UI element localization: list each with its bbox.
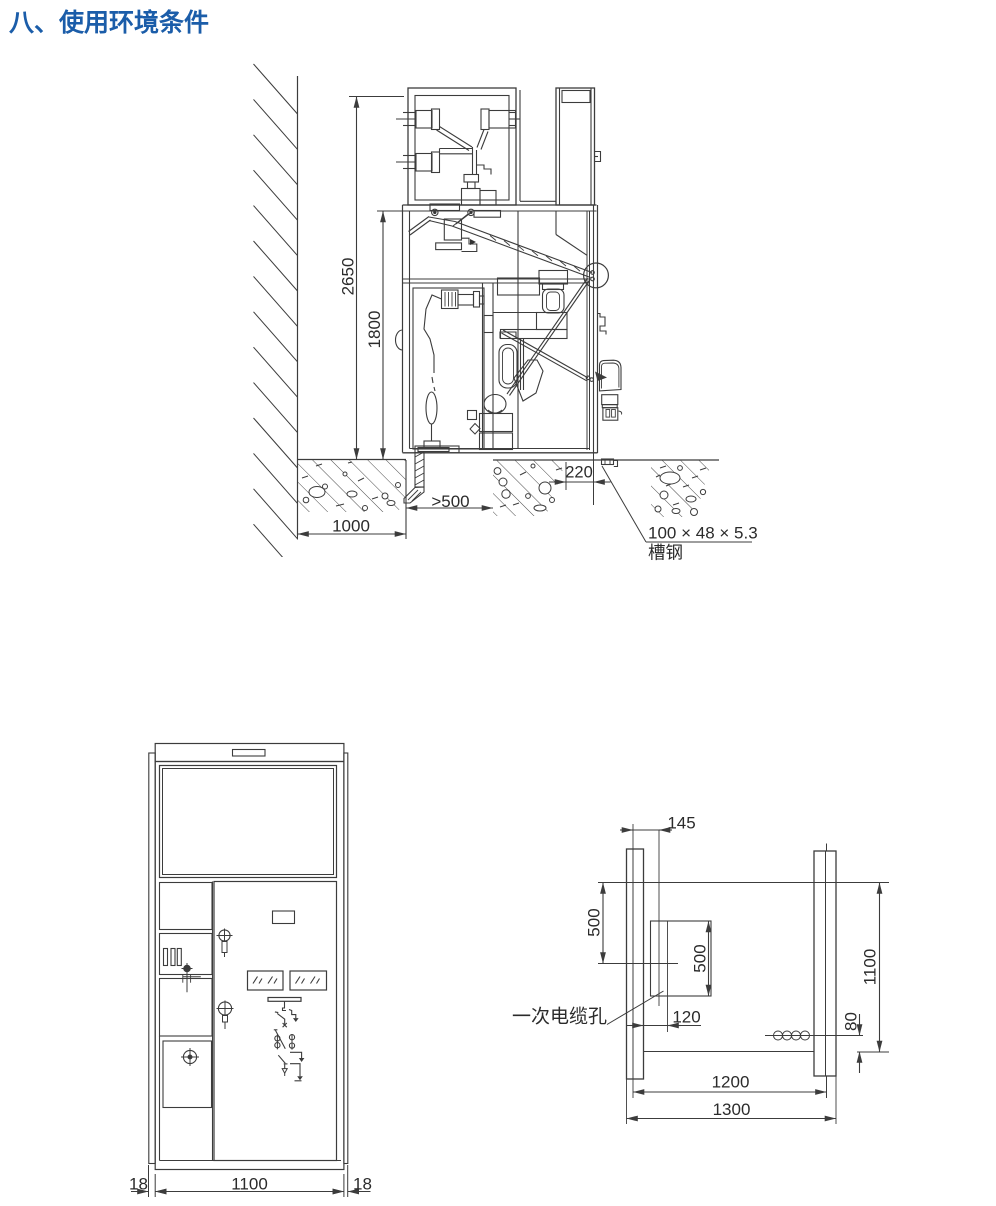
svg-text:500: 500: [585, 908, 604, 936]
svg-text:500: 500: [691, 944, 710, 972]
svg-text:1300: 1300: [713, 1100, 751, 1119]
svg-text:1100: 1100: [861, 949, 880, 986]
svg-text:120: 120: [672, 1008, 700, 1027]
svg-text:80: 80: [842, 1012, 861, 1031]
svg-text:220: 220: [565, 464, 593, 482]
svg-text:1800: 1800: [365, 311, 384, 349]
svg-text:145: 145: [667, 814, 695, 833]
svg-text:>500: >500: [431, 492, 469, 511]
svg-text:槽钢: 槽钢: [648, 543, 683, 563]
svg-text:八、使用环境条件: 八、使用环境条件: [9, 8, 209, 37]
svg-text:2650: 2650: [339, 258, 358, 296]
svg-text:一次电缆孔: 一次电缆孔: [512, 1006, 607, 1028]
svg-text:18: 18: [129, 1174, 148, 1193]
svg-text:1100: 1100: [231, 1174, 268, 1193]
svg-text:18: 18: [353, 1174, 372, 1193]
svg-text:1200: 1200: [712, 1073, 750, 1092]
svg-text:1000: 1000: [332, 517, 370, 536]
svg-text:100 × 48 × 5.3: 100 × 48 × 5.3: [648, 524, 758, 543]
